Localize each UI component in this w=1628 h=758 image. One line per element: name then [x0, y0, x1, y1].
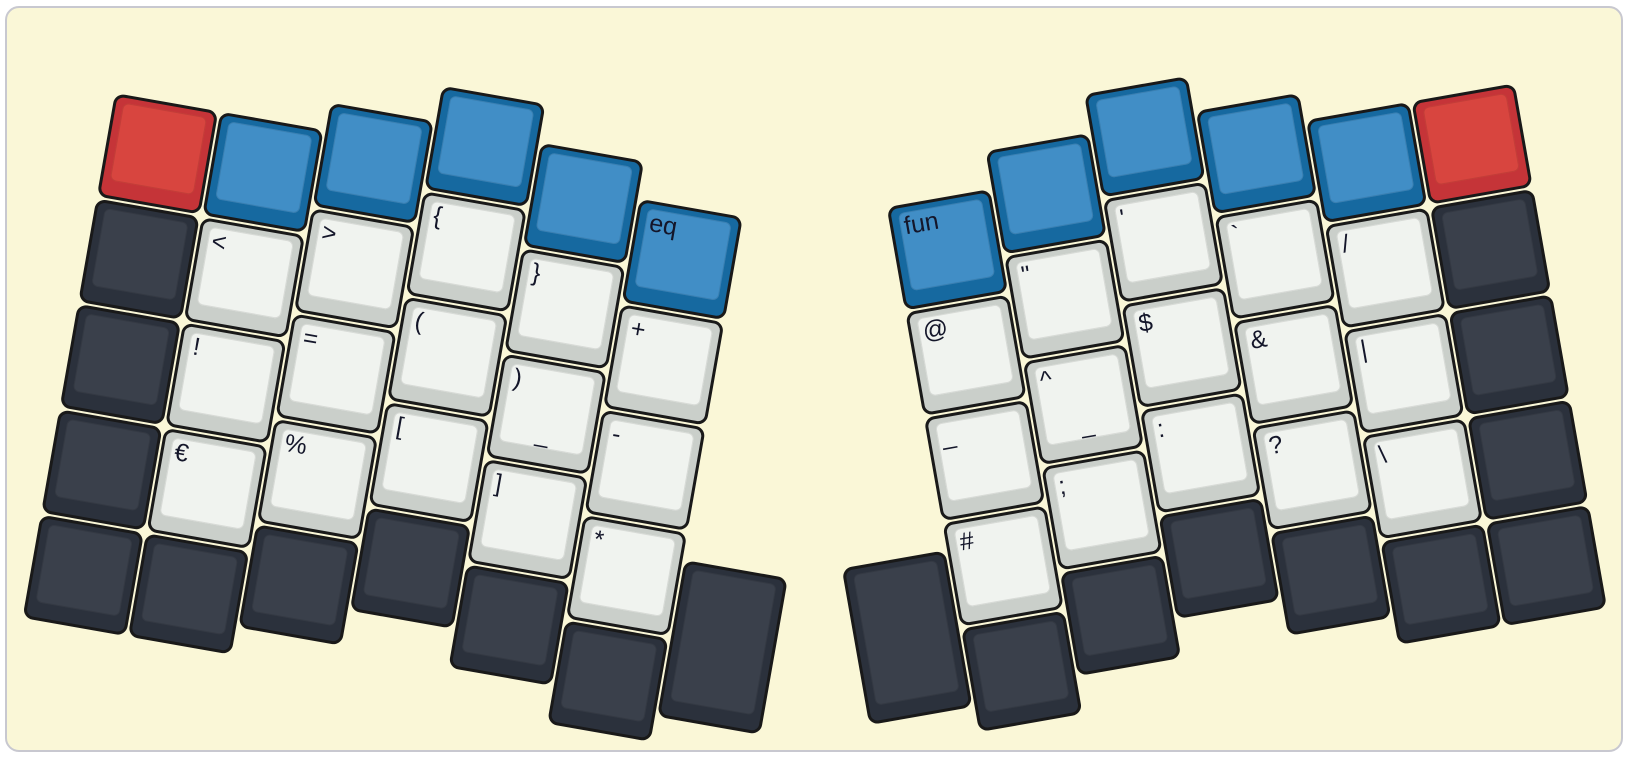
keycap-top-surface: [325, 112, 422, 205]
keycap-top-surface: [35, 524, 132, 617]
key-semicolon[interactable]: ;: [1041, 449, 1163, 571]
keyboard-panel: <!€>=%{([})_]eq+-*fun@_#"^_;'$:`&?/|\: [5, 6, 1623, 752]
keycap-top-surface: [1441, 198, 1538, 291]
keycap-top-surface: [1071, 564, 1168, 657]
key-left-blank-4[interactable]: [22, 514, 144, 636]
key-left-blank-2[interactable]: [60, 304, 182, 426]
keycap-top-surface: [1478, 409, 1575, 502]
key-left-blank-3[interactable]: [41, 409, 163, 531]
key-plus[interactable]: +: [603, 304, 725, 426]
key-right-blank-27[interactable]: [1430, 189, 1552, 311]
key-backtick[interactable]: `: [1214, 198, 1336, 320]
key-right-blank-11[interactable]: [1084, 76, 1206, 198]
key-pipe[interactable]: |: [1343, 313, 1465, 435]
keycap-top-surface: [536, 153, 633, 246]
key-right-blank-20[interactable]: [1270, 515, 1392, 637]
key-left-blank-14[interactable]: [238, 524, 360, 646]
key-legend: fun: [902, 206, 941, 240]
key-right-blank-16[interactable]: [1196, 93, 1318, 215]
keycap-top-surface: [215, 121, 312, 214]
key-right-blank-15[interactable]: [1158, 497, 1280, 619]
key-fun-layer[interactable]: fun: [887, 189, 1009, 311]
key-left-blank-9[interactable]: [128, 533, 250, 655]
keycap-top-surface: [1422, 93, 1519, 186]
keycap-top-surface: [1052, 459, 1149, 552]
keycap-top-surface: [73, 313, 170, 406]
keycap-top-surface: [972, 620, 1069, 713]
key-backslash[interactable]: \: [1362, 418, 1484, 540]
keycap-top-surface: [1281, 524, 1378, 617]
key-left-blank-10[interactable]: [312, 103, 434, 225]
keycap-top-surface: [1095, 85, 1192, 178]
key-legend: @: [920, 313, 950, 346]
key-bracket-open[interactable]: [: [368, 402, 490, 524]
key-minus[interactable]: -: [584, 409, 706, 531]
keycap-top-surface: [461, 574, 558, 667]
keycap-top-surface: [1151, 402, 1248, 495]
key-right-blank-10[interactable]: [1060, 555, 1182, 677]
key-slash[interactable]: /: [1324, 207, 1446, 329]
key-left-blank-20[interactable]: [523, 143, 645, 265]
keycap-top-surface: [54, 419, 151, 512]
keycap-top-surface: [141, 543, 238, 636]
key-hash[interactable]: #: [942, 505, 1064, 627]
keycap-top-surface: [251, 534, 348, 627]
key-paren-open[interactable]: (: [387, 296, 509, 418]
keycap-top-surface: [1207, 103, 1304, 196]
key-brace-close[interactable]: }: [504, 248, 626, 370]
key-right-blank-26[interactable]: [1411, 83, 1533, 205]
key-underscore[interactable]: _: [924, 400, 1046, 522]
key-left-blank-5[interactable]: [202, 112, 324, 234]
key-paren-close[interactable]: )_: [485, 354, 607, 476]
key-euro[interactable]: €: [146, 428, 268, 550]
keycap-top-surface: [1497, 514, 1594, 607]
key-at[interactable]: @: [905, 294, 1027, 416]
keycap-top-surface: [1225, 208, 1322, 301]
key-dollar[interactable]: $: [1121, 287, 1243, 409]
keycap-top-surface: [363, 517, 460, 610]
keycap-top-surface: [1317, 111, 1414, 204]
key-left-blank-15[interactable]: [424, 86, 546, 208]
key-less-than[interactable]: <: [184, 217, 306, 339]
key-left-blank-0[interactable]: [97, 93, 219, 215]
keycap-top-surface: [91, 208, 188, 301]
keycap-top-surface: [437, 95, 534, 188]
key-right-blank-6[interactable]: [985, 133, 1107, 255]
key-right-blank-21[interactable]: [1306, 102, 1428, 224]
key-right-blank-29[interactable]: [1467, 399, 1589, 521]
key-double-quote[interactable]: ": [1004, 239, 1126, 361]
keycap-top-surface: [997, 143, 1094, 236]
key-question[interactable]: ?: [1251, 409, 1373, 531]
key-apostrophe[interactable]: ': [1103, 181, 1225, 303]
keycap-top-surface: [1170, 507, 1267, 600]
keycap-top-surface: [670, 570, 777, 715]
key-equals[interactable]: =: [275, 314, 397, 436]
keycap-top-surface: [1391, 533, 1488, 626]
keycap-top-surface: [1015, 248, 1112, 341]
key-left-blank-19[interactable]: [350, 507, 472, 629]
key-right-blank-30[interactable]: [1486, 505, 1608, 627]
key-greater-than[interactable]: >: [294, 208, 416, 330]
key-caret[interactable]: ^_: [1023, 344, 1145, 466]
key-eq-layer[interactable]: eq: [621, 199, 743, 321]
keycap-top-surface: [110, 103, 207, 196]
keycap-top-surface: [1373, 428, 1470, 521]
key-percent[interactable]: %: [257, 419, 379, 541]
keycap-top-surface: [1460, 304, 1557, 397]
key-brace-open[interactable]: {: [405, 191, 527, 313]
keycap-top-surface: [853, 560, 960, 705]
key-legend: eq: [647, 209, 679, 242]
key-colon[interactable]: :: [1140, 392, 1262, 514]
key-right-blank-28[interactable]: [1448, 294, 1570, 416]
key-ampersand[interactable]: &: [1233, 304, 1355, 426]
keycap-top-surface: [560, 630, 657, 723]
key-bracket-close[interactable]: ]: [467, 459, 589, 581]
key-left-blank-24[interactable]: [448, 565, 570, 687]
key-right-blank-25[interactable]: [1380, 523, 1502, 645]
key-left-blank-1[interactable]: [78, 198, 200, 320]
keycap-top-surface: [1336, 217, 1433, 310]
keycap-top-surface: [1114, 191, 1211, 284]
page: <!€>=%{([})_]eq+-*fun@_#"^_;'$:`&?/|\: [0, 0, 1628, 758]
key-left-blank-29[interactable]: [547, 620, 669, 742]
key-asterisk[interactable]: *: [566, 515, 688, 637]
key-exclamation[interactable]: !: [165, 322, 287, 444]
key-right-blank-5[interactable]: [961, 610, 1083, 732]
keycap-top-surface: [1354, 322, 1451, 415]
